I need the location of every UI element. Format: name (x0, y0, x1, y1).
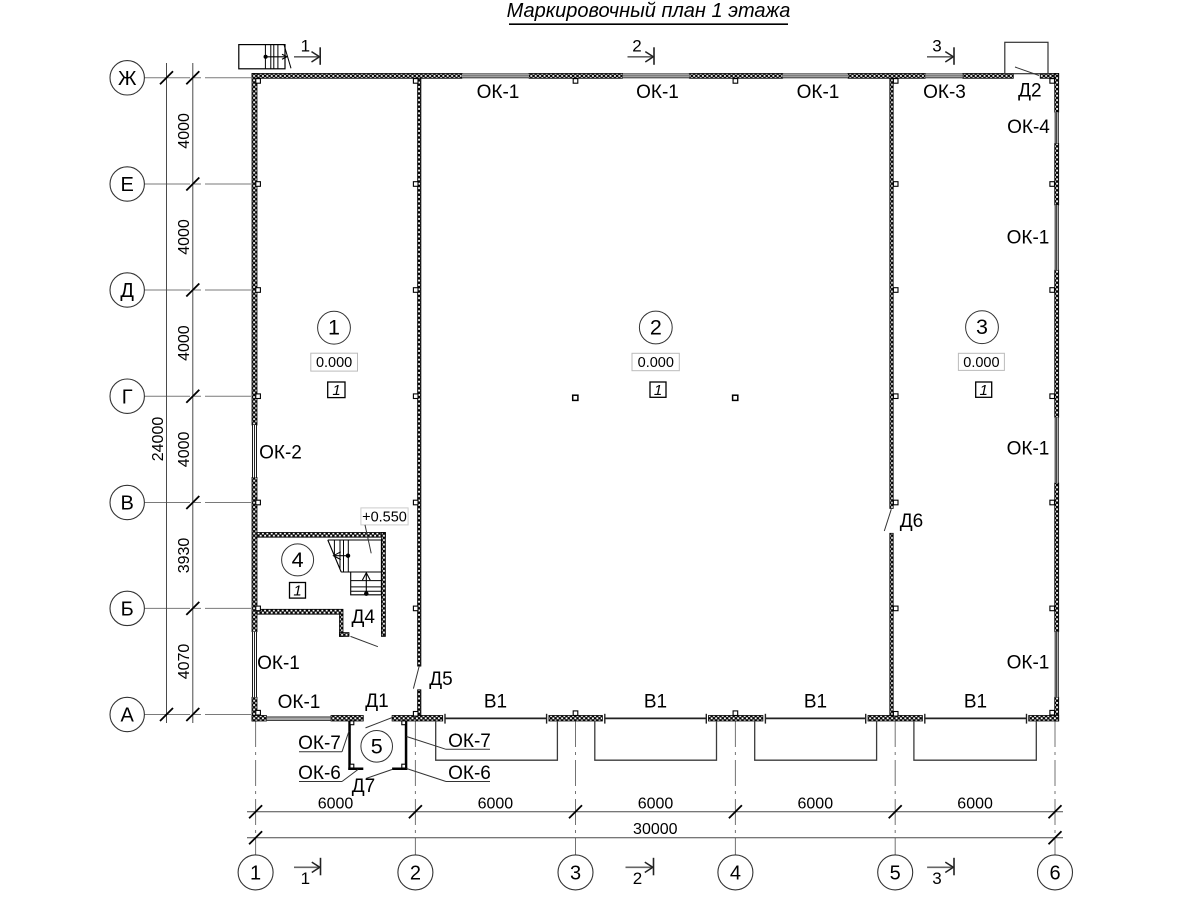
svg-text:ОК-1: ОК-1 (257, 653, 300, 674)
svg-text:Д6: Д6 (900, 511, 923, 532)
svg-text:3930: 3930 (176, 538, 193, 574)
svg-text:4: 4 (292, 548, 304, 572)
svg-text:ОК-1: ОК-1 (1007, 653, 1050, 674)
svg-text:3: 3 (570, 862, 581, 884)
svg-text:1: 1 (250, 862, 261, 884)
svg-text:5: 5 (371, 734, 383, 758)
svg-text:6000: 6000 (638, 795, 674, 812)
svg-text:В1: В1 (484, 692, 507, 713)
svg-text:4000: 4000 (176, 113, 193, 149)
svg-text:ОК-1: ОК-1 (477, 82, 520, 103)
svg-text:4: 4 (730, 862, 741, 884)
svg-text:1: 1 (293, 583, 301, 600)
svg-text:В1: В1 (644, 692, 667, 713)
svg-text:24000: 24000 (150, 417, 167, 462)
svg-text:4000: 4000 (176, 325, 193, 361)
svg-text:5: 5 (890, 862, 901, 884)
svg-text:Д1: Д1 (365, 691, 388, 712)
svg-text:В1: В1 (964, 692, 987, 713)
svg-text:Е: Е (121, 174, 134, 196)
svg-text:0.000: 0.000 (316, 355, 352, 371)
svg-text:1: 1 (980, 382, 988, 399)
svg-text:30000: 30000 (633, 821, 678, 838)
svg-text:ОК-1: ОК-1 (1007, 439, 1050, 460)
svg-text:3: 3 (932, 36, 941, 55)
svg-text:ОК-1: ОК-1 (1007, 228, 1050, 249)
svg-text:Д5: Д5 (429, 669, 452, 690)
svg-text:ОК-1: ОК-1 (636, 82, 679, 103)
svg-text:ОК-2: ОК-2 (259, 443, 302, 464)
svg-text:2: 2 (410, 862, 421, 884)
svg-text:ОК-3: ОК-3 (923, 82, 966, 103)
svg-text:ОК-1: ОК-1 (797, 82, 840, 103)
svg-text:ОК-6: ОК-6 (448, 763, 491, 784)
svg-text:Д2: Д2 (1018, 81, 1041, 102)
svg-text:Г: Г (122, 386, 133, 408)
svg-text:2: 2 (633, 869, 642, 888)
svg-text:Ж: Ж (118, 68, 137, 90)
svg-text:ОК-7: ОК-7 (298, 733, 341, 754)
svg-text:1: 1 (328, 316, 340, 340)
svg-text:4070: 4070 (176, 644, 193, 680)
svg-text:Д4: Д4 (351, 607, 375, 628)
svg-text:6: 6 (1049, 862, 1060, 884)
svg-text:6000: 6000 (318, 795, 354, 812)
svg-text:1: 1 (301, 36, 310, 55)
svg-text:3: 3 (932, 869, 941, 888)
svg-text:2: 2 (632, 36, 641, 55)
svg-text:0.000: 0.000 (963, 355, 999, 371)
svg-text:6000: 6000 (478, 795, 514, 812)
svg-text:ОК-6: ОК-6 (298, 763, 341, 784)
svg-text:ОК-1: ОК-1 (278, 692, 321, 713)
svg-text:Маркировочный план 1 этажа: Маркировочный план 1 этажа (507, 0, 791, 22)
svg-text:В1: В1 (804, 692, 827, 713)
svg-text:Д7: Д7 (352, 776, 375, 797)
svg-text:1: 1 (332, 382, 340, 399)
svg-text:ОК-4: ОК-4 (1007, 117, 1050, 138)
svg-text:4000: 4000 (176, 219, 193, 255)
svg-text:4000: 4000 (176, 432, 193, 468)
svg-text:6000: 6000 (957, 795, 993, 812)
svg-text:+0.550: +0.550 (362, 509, 407, 525)
svg-text:Б: Б (121, 599, 134, 621)
svg-text:2: 2 (650, 316, 662, 340)
svg-text:Д: Д (120, 280, 134, 302)
svg-text:А: А (121, 705, 135, 727)
svg-text:0.000: 0.000 (638, 355, 674, 371)
svg-text:3: 3 (976, 315, 988, 339)
svg-text:1: 1 (301, 869, 310, 888)
svg-text:1: 1 (654, 382, 662, 399)
svg-text:6000: 6000 (798, 795, 834, 812)
svg-text:В: В (121, 493, 134, 515)
